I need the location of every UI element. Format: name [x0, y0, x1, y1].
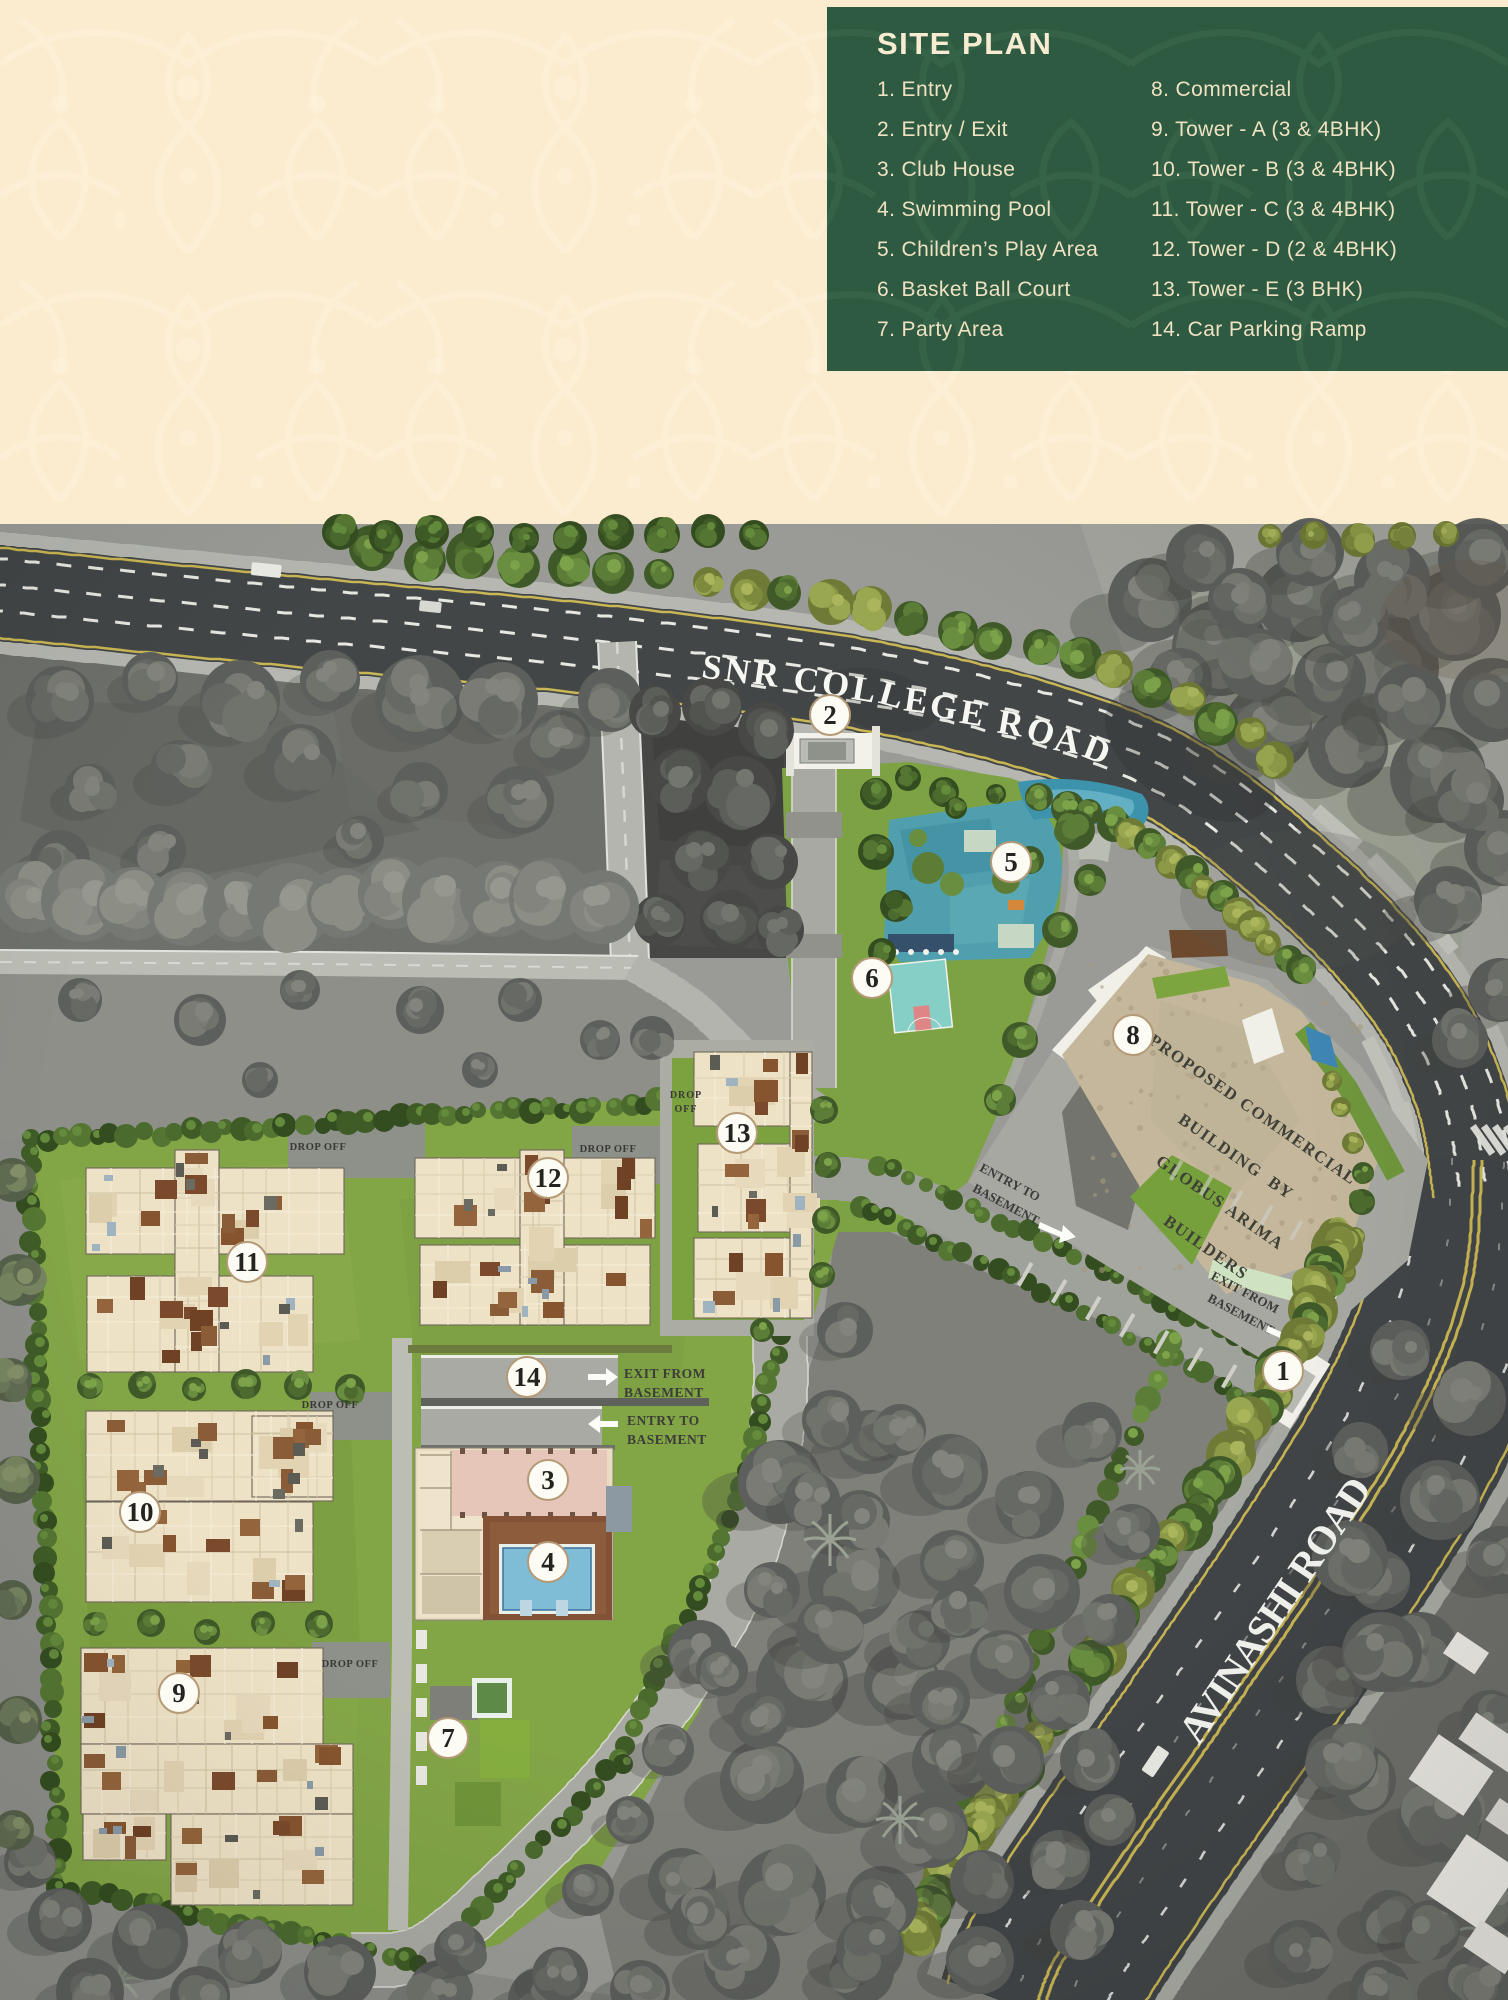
svg-text:11: 11: [234, 1247, 260, 1277]
svg-text:7: 7: [441, 1723, 455, 1753]
svg-text:OFF: OFF: [675, 1104, 698, 1115]
svg-text:1. Entry: 1. Entry: [877, 78, 953, 101]
svg-text:10: 10: [127, 1497, 154, 1527]
svg-text:3: 3: [541, 1465, 555, 1495]
svg-text:5. Children’s Play Area: 5. Children’s Play Area: [877, 238, 1098, 261]
svg-text:11. Tower - C (3 & 4BHK): 11. Tower - C (3 & 4BHK): [1151, 198, 1396, 221]
svg-text:13. Tower - E (3 BHK): 13. Tower - E (3 BHK): [1151, 278, 1363, 301]
svg-text:14: 14: [514, 1362, 541, 1392]
svg-text:9: 9: [172, 1678, 186, 1708]
svg-text:DROP OFF: DROP OFF: [322, 1659, 379, 1670]
svg-text:4. Swimming Pool: 4. Swimming Pool: [877, 198, 1051, 221]
svg-text:DROP OFF: DROP OFF: [302, 1400, 359, 1411]
svg-text:2: 2: [823, 700, 837, 730]
svg-text:7. Party Area: 7. Party Area: [877, 318, 1004, 341]
svg-text:13: 13: [724, 1118, 751, 1148]
svg-text:6: 6: [865, 963, 879, 993]
svg-text:14. Car Parking Ramp: 14. Car Parking Ramp: [1151, 318, 1367, 341]
svg-text:DROP OFF: DROP OFF: [580, 1144, 637, 1155]
svg-text:10. Tower - B (3 & 4BHK): 10. Tower - B (3 & 4BHK): [1151, 158, 1396, 181]
svg-text:4: 4: [541, 1547, 555, 1577]
svg-text:3. Club House: 3. Club House: [877, 158, 1015, 181]
svg-text:8. Commercial: 8. Commercial: [1151, 78, 1292, 101]
svg-text:DROP: DROP: [670, 1090, 702, 1101]
svg-text:8: 8: [1126, 1020, 1140, 1050]
svg-text:SITE PLAN: SITE PLAN: [877, 26, 1052, 61]
svg-text:1: 1: [1276, 1356, 1290, 1386]
svg-text:5: 5: [1004, 847, 1018, 877]
svg-text:9. Tower - A (3 & 4BHK): 9. Tower - A (3 & 4BHK): [1151, 118, 1382, 141]
svg-text:2. Entry / Exit: 2. Entry / Exit: [877, 118, 1008, 141]
svg-text:12: 12: [535, 1163, 562, 1193]
svg-text:6. Basket Ball Court: 6. Basket Ball Court: [877, 278, 1071, 301]
svg-text:12. Tower - D (2 & 4BHK): 12. Tower - D (2 & 4BHK): [1151, 238, 1397, 261]
svg-text:DROP OFF: DROP OFF: [290, 1142, 347, 1153]
